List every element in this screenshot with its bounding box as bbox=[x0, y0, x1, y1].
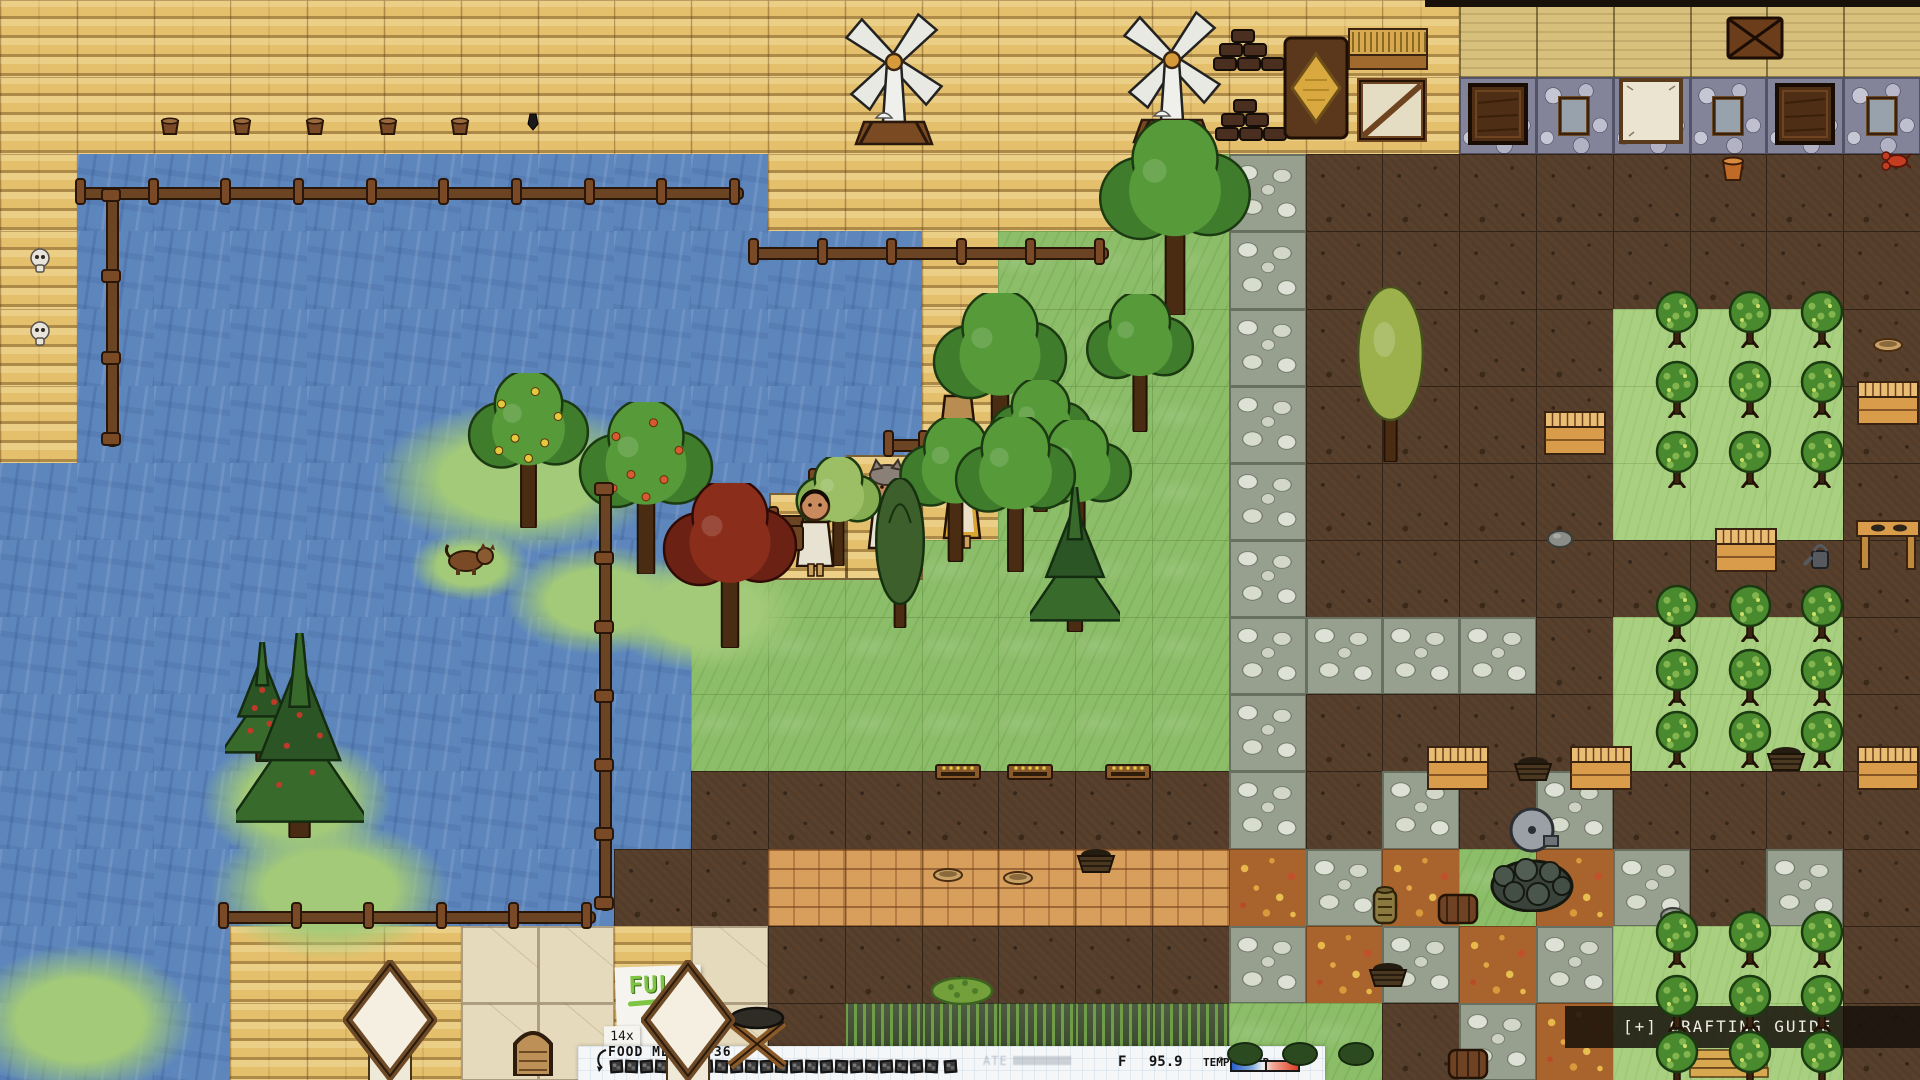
tile-brick-path bbox=[922, 849, 999, 927]
tile-water bbox=[461, 231, 539, 310]
tool[interactable] bbox=[526, 112, 540, 132]
tile-dirt bbox=[1075, 926, 1153, 1004]
skull[interactable] bbox=[28, 321, 52, 347]
tile-plank-floor bbox=[307, 0, 385, 78]
tile-dirt bbox=[1536, 309, 1614, 387]
tile-grass bbox=[768, 694, 846, 772]
tile-plank-floor bbox=[230, 1003, 308, 1080]
food-box-filled bbox=[835, 1060, 849, 1074]
gooseberry-bush[interactable] bbox=[1649, 910, 1705, 968]
tile-plank-floor bbox=[691, 0, 769, 78]
bucket[interactable] bbox=[449, 116, 471, 136]
food-box-filled bbox=[625, 1060, 639, 1074]
tile-plank-floor bbox=[0, 77, 78, 155]
tile-plank-floor bbox=[77, 77, 155, 155]
tile-dirt bbox=[845, 771, 923, 850]
tile-water bbox=[154, 540, 231, 618]
gooseberry-bush[interactable] bbox=[1794, 648, 1850, 706]
tile-water bbox=[230, 386, 308, 464]
tile-water bbox=[0, 849, 78, 927]
tent[interactable] bbox=[641, 960, 735, 1080]
gooseberry-bush[interactable] bbox=[1649, 584, 1705, 642]
tile-plank-floor bbox=[998, 0, 1076, 78]
gooseberry-bush[interactable] bbox=[1649, 1030, 1705, 1080]
tile-wood-panel bbox=[1536, 0, 1614, 78]
gooseberry-bush[interactable] bbox=[1649, 290, 1705, 348]
tile-water bbox=[768, 386, 846, 464]
gooseberry-bush[interactable] bbox=[1649, 430, 1705, 488]
tile-water bbox=[0, 617, 78, 695]
gooseberry-bush[interactable] bbox=[1722, 648, 1778, 706]
wooden-sign[interactable] bbox=[935, 760, 981, 782]
tile-dirt bbox=[691, 849, 769, 927]
gooseberry-bush[interactable] bbox=[1722, 290, 1778, 348]
tile-dirt bbox=[998, 771, 1076, 850]
tile-water bbox=[77, 463, 155, 541]
tile-brick-path bbox=[845, 849, 923, 927]
wooden-chest[interactable] bbox=[1726, 12, 1784, 60]
tile-dirt bbox=[1306, 154, 1383, 232]
tile-cobblestone-path bbox=[1229, 617, 1307, 695]
gooseberry-bush[interactable] bbox=[1649, 360, 1705, 418]
food-box-filled bbox=[865, 1060, 879, 1074]
tile-water bbox=[691, 309, 769, 387]
temp-meter-divider bbox=[1265, 1062, 1267, 1070]
tile-grass bbox=[1152, 463, 1230, 541]
tree[interactable] bbox=[1080, 294, 1200, 432]
tile-water bbox=[154, 617, 231, 695]
food-box-filled bbox=[910, 1060, 924, 1074]
tile-water bbox=[154, 231, 231, 310]
food-box-filled bbox=[820, 1060, 834, 1074]
clay-pot[interactable] bbox=[1720, 156, 1746, 182]
wall-door-panel[interactable] bbox=[1775, 83, 1835, 145]
tile-grass bbox=[691, 694, 769, 772]
top-edge-strip bbox=[1425, 0, 1920, 7]
tile-plank-floor bbox=[768, 154, 846, 232]
gooseberry-bush[interactable] bbox=[1794, 1030, 1850, 1080]
food-box-filled bbox=[880, 1060, 894, 1074]
tile-dirt bbox=[1843, 231, 1920, 310]
tile-water bbox=[384, 694, 462, 772]
tile-water bbox=[538, 231, 615, 310]
tile-dirt bbox=[1459, 154, 1537, 232]
tile-water bbox=[77, 540, 155, 618]
tile-plank-floor bbox=[614, 77, 692, 155]
tile-water bbox=[307, 463, 385, 541]
tile-dirt bbox=[1536, 231, 1614, 310]
food-box-filled bbox=[850, 1060, 864, 1074]
tile-dirt bbox=[1075, 771, 1153, 850]
bucket[interactable] bbox=[304, 116, 326, 136]
tile-dirt bbox=[922, 771, 999, 850]
tile-wood-panel bbox=[1613, 0, 1691, 78]
wall-paper-panel[interactable] bbox=[1619, 78, 1683, 144]
tile-water bbox=[154, 386, 231, 464]
poplar-tree[interactable] bbox=[1352, 287, 1429, 462]
tile-water bbox=[77, 771, 155, 850]
pine-tree[interactable] bbox=[236, 633, 363, 838]
tile-cobblestone-path bbox=[1229, 694, 1307, 772]
tile-cobblestone-path bbox=[1306, 617, 1383, 695]
tile-dirt bbox=[1459, 386, 1537, 464]
tile-dirt bbox=[1152, 926, 1230, 1004]
gooseberry-bush[interactable] bbox=[1649, 648, 1705, 706]
cypress-tree[interactable] bbox=[873, 478, 927, 628]
wooden-table[interactable] bbox=[1856, 520, 1920, 570]
storage-bin[interactable] bbox=[1281, 34, 1351, 142]
gooseberry-bush[interactable] bbox=[1649, 974, 1705, 1032]
tile-dirt bbox=[1690, 771, 1767, 850]
tile-plank-floor bbox=[384, 0, 462, 78]
tile-water bbox=[845, 309, 923, 387]
tile-dirt bbox=[1766, 154, 1844, 232]
basket[interactable] bbox=[1764, 744, 1808, 772]
tile-water bbox=[154, 694, 231, 772]
tile-water bbox=[0, 540, 78, 618]
tile-water bbox=[77, 694, 155, 772]
tile-cobblestone-path bbox=[1229, 463, 1307, 541]
tile-cobblestone-path bbox=[1229, 386, 1307, 464]
wheat-table[interactable] bbox=[1348, 28, 1428, 70]
tile-dirt bbox=[1382, 154, 1460, 232]
skull[interactable] bbox=[28, 248, 52, 274]
tile-dirt bbox=[1536, 617, 1614, 695]
tile-water bbox=[614, 771, 692, 850]
gooseberry-bush[interactable] bbox=[1722, 974, 1778, 1032]
tile-water bbox=[154, 463, 231, 541]
tile-dirt bbox=[1306, 540, 1383, 618]
tile-dirt bbox=[1306, 694, 1383, 772]
barrel[interactable] bbox=[1447, 1048, 1489, 1080]
temp-curl-icon: ↷ bbox=[1218, 1052, 1225, 1065]
wall-window[interactable] bbox=[1558, 96, 1590, 136]
tile-dirt bbox=[1459, 540, 1537, 618]
gooseberry-bush[interactable] bbox=[1722, 360, 1778, 418]
tile-dirt bbox=[1843, 617, 1920, 695]
temp-value: 95.9 bbox=[1149, 1054, 1183, 1070]
tile-cobblestone-path bbox=[1382, 617, 1460, 695]
tile-plank-floor bbox=[538, 0, 615, 78]
bucket[interactable] bbox=[159, 116, 181, 136]
shrub[interactable] bbox=[1337, 1040, 1375, 1066]
food-box-filled bbox=[805, 1060, 819, 1074]
tile-dirt bbox=[1152, 771, 1230, 850]
tile-plank-floor bbox=[998, 154, 1076, 232]
tile-dirt bbox=[1382, 463, 1460, 541]
watering-can[interactable] bbox=[1802, 538, 1834, 570]
tile-water bbox=[77, 849, 155, 927]
gooseberry-bush[interactable] bbox=[1794, 910, 1850, 968]
dog[interactable] bbox=[444, 541, 496, 575]
tile-dirt bbox=[1459, 231, 1537, 310]
wooden-sign[interactable] bbox=[1105, 760, 1151, 782]
clay-bowl[interactable] bbox=[1003, 871, 1033, 885]
tile-dirt bbox=[1536, 540, 1614, 618]
tent[interactable] bbox=[343, 960, 437, 1080]
storage-crate[interactable] bbox=[1857, 746, 1919, 790]
tile-plank-floor bbox=[0, 386, 78, 464]
tile-cobblestone-path bbox=[1229, 771, 1307, 850]
fence[interactable] bbox=[97, 188, 125, 443]
gooseberry-bush[interactable] bbox=[1649, 710, 1705, 768]
clay-bowl[interactable] bbox=[1873, 338, 1903, 352]
tile-plank-floor bbox=[922, 154, 999, 232]
fence[interactable] bbox=[218, 902, 592, 930]
tile-brick-path bbox=[768, 849, 846, 927]
last-ate-note: ATE bbox=[983, 1054, 1071, 1068]
storage-crate[interactable] bbox=[1427, 746, 1489, 790]
gooseberry-bush[interactable] bbox=[1722, 910, 1778, 968]
tile-brick-path bbox=[1152, 849, 1230, 927]
storage-crate[interactable] bbox=[1857, 381, 1919, 425]
tile-dirt bbox=[845, 926, 923, 1004]
tile-cobblestone-path bbox=[1229, 926, 1307, 1004]
tile-water bbox=[384, 231, 462, 310]
gooseberry-bush[interactable] bbox=[1794, 430, 1850, 488]
tile-dirt bbox=[1382, 540, 1460, 618]
windmill[interactable] bbox=[824, 0, 964, 150]
tile-cobblestone-path bbox=[1229, 540, 1307, 618]
framed-crate[interactable] bbox=[1357, 78, 1427, 142]
tile-water bbox=[307, 540, 385, 618]
tile-water bbox=[230, 540, 308, 618]
food-box-filled bbox=[895, 1060, 909, 1074]
food-box-filled bbox=[610, 1060, 624, 1074]
tile-cobblestone-path bbox=[1536, 926, 1614, 1004]
food-box-filled bbox=[925, 1060, 939, 1074]
tile-plank-floor bbox=[691, 77, 769, 155]
tile-leaf-litter bbox=[1459, 926, 1537, 1004]
fence[interactable] bbox=[75, 178, 740, 206]
tile-dirt bbox=[1843, 926, 1920, 1004]
storage-crate[interactable] bbox=[1715, 528, 1777, 572]
tree[interactable] bbox=[1090, 120, 1260, 316]
tile-dirt bbox=[1613, 154, 1691, 232]
tile-water bbox=[307, 231, 385, 310]
clay-bowl[interactable] bbox=[933, 868, 963, 882]
wall-window[interactable] bbox=[1712, 96, 1744, 136]
gooseberry-bush[interactable] bbox=[1794, 584, 1850, 642]
tile-plank-floor bbox=[998, 77, 1076, 155]
storage-crate[interactable] bbox=[1544, 411, 1606, 455]
gooseberry-bush[interactable] bbox=[1722, 584, 1778, 642]
game-viewport[interactable]: FULL 14x FOOD METER +36 ATE F 95.9 TEMP … bbox=[0, 0, 1920, 1080]
tile-water bbox=[0, 694, 78, 772]
tile-dirt bbox=[1843, 849, 1920, 927]
tile-plank-floor bbox=[538, 77, 615, 155]
basket[interactable] bbox=[1511, 754, 1555, 782]
tile-water bbox=[461, 694, 539, 772]
tile-plank-floor bbox=[154, 0, 231, 78]
tile-adobe-wall bbox=[461, 926, 539, 1004]
tile-dirt bbox=[1306, 463, 1383, 541]
tile-dirt bbox=[998, 926, 1076, 1004]
tile-adobe-wall bbox=[538, 926, 615, 1004]
temp-unit-label: F bbox=[1118, 1054, 1126, 1070]
shrub[interactable] bbox=[1226, 1040, 1264, 1066]
tile-cobblestone-path bbox=[1229, 309, 1307, 387]
doorway-arch[interactable] bbox=[509, 1018, 557, 1076]
tile-wood-panel bbox=[1459, 0, 1537, 78]
wall-window[interactable] bbox=[1866, 96, 1898, 136]
basket[interactable] bbox=[1366, 960, 1410, 988]
bucket[interactable] bbox=[231, 116, 253, 136]
tile-water bbox=[230, 463, 308, 541]
tile-water bbox=[384, 617, 462, 695]
gooseberry-bush[interactable] bbox=[1722, 1030, 1778, 1080]
gooseberry-bush[interactable] bbox=[1722, 430, 1778, 488]
tile-plank-floor bbox=[77, 0, 155, 78]
produce-pile[interactable] bbox=[929, 969, 995, 1005]
bucket[interactable] bbox=[377, 116, 399, 136]
tile-grass bbox=[1152, 540, 1230, 618]
pine-tree[interactable] bbox=[1030, 487, 1120, 632]
tile-water bbox=[384, 309, 462, 387]
tile-dirt bbox=[1766, 771, 1844, 850]
tile-dirt bbox=[1306, 771, 1383, 850]
fence[interactable] bbox=[590, 482, 618, 907]
tile-water bbox=[307, 309, 385, 387]
tile-dirt bbox=[1459, 309, 1537, 387]
tile-water bbox=[461, 771, 539, 850]
tile-dirt bbox=[1536, 154, 1614, 232]
stone[interactable] bbox=[1547, 528, 1573, 548]
tile-water bbox=[230, 231, 308, 310]
tile-water bbox=[614, 309, 692, 387]
tile-water bbox=[614, 694, 692, 772]
wall-door-panel[interactable] bbox=[1468, 83, 1528, 145]
tile-water bbox=[77, 617, 155, 695]
tile-wood-panel bbox=[1843, 0, 1920, 78]
tile-dirt bbox=[614, 849, 692, 927]
tile-cobblestone-path bbox=[1459, 617, 1537, 695]
gooseberry-bush[interactable] bbox=[1794, 360, 1850, 418]
tile-grass bbox=[845, 694, 923, 772]
barrel[interactable] bbox=[1437, 893, 1479, 925]
tile-grass bbox=[845, 617, 923, 695]
tile-plank-floor bbox=[461, 0, 539, 78]
tile-dirt bbox=[768, 771, 846, 850]
basket[interactable] bbox=[1074, 846, 1118, 874]
tile-water bbox=[154, 309, 231, 387]
tile-water bbox=[307, 386, 385, 464]
tile-water bbox=[768, 309, 846, 387]
lobster[interactable] bbox=[1881, 148, 1911, 172]
storage-crate[interactable] bbox=[1570, 746, 1632, 790]
tile-water bbox=[0, 771, 78, 850]
tile-brick-path bbox=[998, 849, 1076, 927]
tile-water bbox=[230, 309, 308, 387]
tile-water bbox=[0, 463, 78, 541]
tile-plank-floor bbox=[230, 0, 308, 78]
tile-plank-floor bbox=[614, 0, 692, 78]
gooseberry-bush[interactable] bbox=[1794, 974, 1850, 1032]
fence[interactable] bbox=[748, 238, 1105, 266]
tile-grass bbox=[1152, 694, 1230, 772]
tile-dirt bbox=[768, 926, 846, 1004]
clay-jug[interactable] bbox=[1369, 883, 1401, 925]
wooden-sign[interactable] bbox=[1007, 760, 1053, 782]
tile-dirt bbox=[691, 771, 769, 850]
food-box-extra bbox=[944, 1060, 958, 1074]
tile-plank-floor bbox=[0, 0, 78, 78]
tile-grass bbox=[1152, 617, 1230, 695]
tile-water bbox=[614, 231, 692, 310]
tile-grass bbox=[922, 617, 999, 695]
tile-plank-floor bbox=[0, 154, 78, 232]
tile-dirt bbox=[1459, 463, 1537, 541]
well[interactable] bbox=[1486, 800, 1578, 912]
tile-leaf-litter bbox=[1229, 849, 1307, 927]
red-tree[interactable] bbox=[655, 483, 805, 648]
tile-plank-floor bbox=[845, 154, 923, 232]
food-meter-arrow-icon bbox=[594, 1048, 608, 1078]
gooseberry-bush[interactable] bbox=[1794, 290, 1850, 348]
shrub[interactable] bbox=[1281, 1040, 1319, 1066]
